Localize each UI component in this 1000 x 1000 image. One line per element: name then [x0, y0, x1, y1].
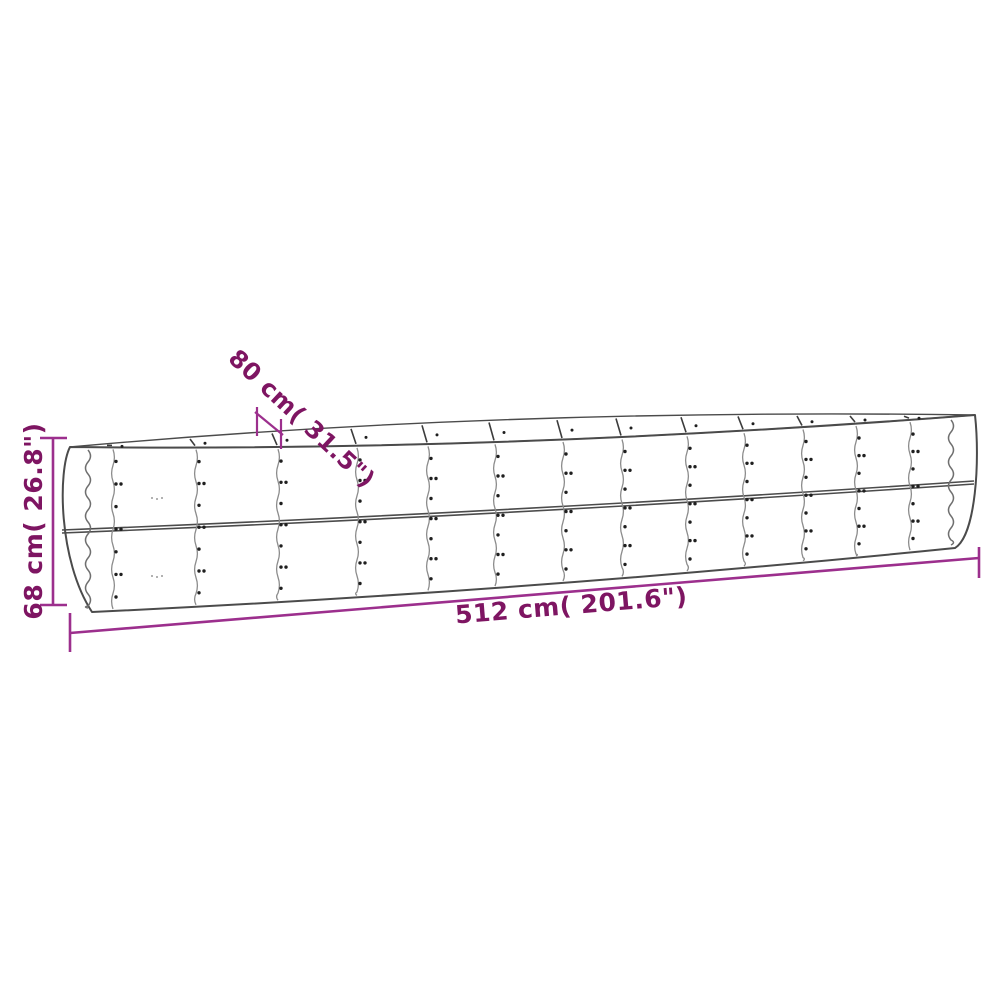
rivet-dot: [501, 514, 504, 517]
rivet-dot: [114, 460, 117, 463]
rim-rivet: [695, 424, 698, 427]
rim-notch: [738, 416, 743, 429]
rivet-dot: [197, 547, 200, 550]
rivet-dot: [688, 447, 691, 450]
rivet-dot: [496, 533, 499, 536]
rivet-dot: [857, 525, 860, 528]
rivet-dot: [496, 474, 499, 477]
rivet-dot: [197, 460, 200, 463]
rivet-dot: [688, 502, 691, 505]
rim-rivet: [811, 420, 814, 423]
rivet-dot: [745, 516, 748, 519]
rim-notch: [489, 423, 494, 441]
planter-illustration: 68 cm( 26.8") 512 cm( 201.6") 80 cm( 31.…: [0, 0, 1000, 1000]
rivet-dot: [197, 482, 200, 485]
rivet-dot: [857, 472, 860, 475]
rim-notch: [681, 417, 686, 432]
rivet-dot: [809, 458, 812, 461]
rivet-dot: [429, 497, 432, 500]
rivet-dot: [623, 487, 626, 490]
rivet-dot: [623, 525, 626, 528]
rivet-dot: [202, 569, 205, 572]
height-dimension-label: 68 cm( 26.8"): [19, 422, 48, 619]
rivet-dot: [911, 537, 914, 540]
rivet-dot: [911, 502, 914, 505]
rivet-dot: [623, 506, 626, 509]
rivet-dot: [623, 450, 626, 453]
rivet-dot: [750, 534, 753, 537]
rivet-dot: [564, 567, 567, 570]
rivet-dot: [628, 506, 631, 509]
rivet-dot: [804, 547, 807, 550]
rivet-dot: [745, 498, 748, 501]
rivet-dot: [911, 485, 914, 488]
rivet-dot: [569, 472, 572, 475]
rivet-dot: [358, 520, 361, 523]
rivet-dot: [202, 526, 205, 529]
rivet-dot: [693, 502, 696, 505]
rivet-dot: [804, 458, 807, 461]
rivet-dot: [279, 544, 282, 547]
rim-rivet: [204, 442, 207, 445]
rivet-dot: [857, 489, 860, 492]
rim-rivet: [864, 419, 867, 422]
rivet-dot: [745, 552, 748, 555]
rivet-dot: [564, 510, 567, 513]
rivet-dot: [911, 519, 914, 522]
rivet-dot: [688, 539, 691, 542]
planter-body-outline: [63, 415, 977, 612]
rivet-dot: [119, 573, 122, 576]
rim-notch: [616, 419, 621, 436]
rivet-dot: [750, 462, 753, 465]
rivet-dot: [279, 481, 282, 484]
rivet-dot: [688, 484, 691, 487]
rivet-dot: [197, 591, 200, 594]
rivet-dot: [114, 528, 117, 531]
rivet-dot: [745, 462, 748, 465]
rivet-dot: [496, 572, 499, 575]
rivet-dot: [911, 432, 914, 435]
rim-rivet: [436, 433, 439, 436]
rivet-dot: [628, 544, 631, 547]
rim-rivet: [503, 431, 506, 434]
rivet-dot: [623, 469, 626, 472]
rivet-dot: [857, 436, 860, 439]
rivet-dot: [745, 534, 748, 537]
rivet-dot: [197, 504, 200, 507]
rivet-dot: [429, 537, 432, 540]
rivet-dot: [279, 523, 282, 526]
rivet-dot: [114, 550, 117, 553]
rivet-dot: [809, 494, 812, 497]
rivet-dot: [911, 450, 914, 453]
rivet-dot: [745, 444, 748, 447]
rivet-dot: [804, 440, 807, 443]
rim-rivet: [918, 417, 921, 420]
rivet-dot: [358, 582, 361, 585]
rivet-dot: [564, 548, 567, 551]
rivet-dot: [358, 499, 361, 502]
rivet-dot: [496, 455, 499, 458]
rivet-dot: [284, 565, 287, 568]
rivet-dot: [114, 505, 117, 508]
rim-notch: [190, 439, 195, 446]
rivet-dot: [429, 517, 432, 520]
rim-rivet: [365, 436, 368, 439]
rivet-dot: [202, 482, 205, 485]
rivet-dot: [434, 477, 437, 480]
rivet-dot: [564, 529, 567, 532]
rivet-dot: [564, 472, 567, 475]
rivet-dot: [279, 565, 282, 568]
rim-notch: [422, 425, 427, 442]
rivet-dot: [363, 520, 366, 523]
rivet-dot: [804, 529, 807, 532]
rivet-dot: [862, 489, 865, 492]
rim-notch: [850, 416, 855, 422]
rivet-dot: [628, 469, 631, 472]
rivet-dot: [693, 465, 696, 468]
rivet-dot: [804, 494, 807, 497]
rivet-dot: [284, 523, 287, 526]
rivet-dot: [279, 587, 282, 590]
rivet-dot: [862, 454, 865, 457]
rivet-dot: [564, 452, 567, 455]
rivet-dot: [434, 517, 437, 520]
rim-notch: [272, 434, 277, 446]
rivet-dot: [434, 557, 437, 560]
rivet-dot: [569, 510, 572, 513]
rivet-dot: [114, 573, 117, 576]
rivet-dot: [911, 467, 914, 470]
rivet-dot: [804, 511, 807, 514]
rivet-dot: [862, 525, 865, 528]
rivet-dot: [363, 561, 366, 564]
rivet-dot: [496, 494, 499, 497]
rivet-dot: [501, 553, 504, 556]
rim-notch: [351, 429, 356, 444]
rivet-dot: [429, 577, 432, 580]
rivet-dot: [114, 482, 117, 485]
rim-rivet: [752, 422, 755, 425]
rivet-dot: [745, 480, 748, 483]
rivet-dot: [496, 514, 499, 517]
rivet-dot: [197, 526, 200, 529]
rivet-dot: [564, 491, 567, 494]
rivet-dot: [857, 507, 860, 510]
rivet-dot: [916, 450, 919, 453]
rivet-dot: [429, 477, 432, 480]
rivet-dot: [623, 544, 626, 547]
rivet-dot: [279, 502, 282, 505]
rivet-dot: [804, 476, 807, 479]
rivet-dot: [358, 561, 361, 564]
rivet-dot: [284, 481, 287, 484]
rim-notch: [557, 420, 562, 438]
rivet-dot: [496, 553, 499, 556]
rivet-dot: [358, 541, 361, 544]
rim-rivet: [286, 439, 289, 442]
diagram-canvas: 68 cm( 26.8") 512 cm( 201.6") 80 cm( 31.…: [0, 0, 1000, 1000]
rim-notch: [797, 416, 802, 426]
rim-rivet: [630, 427, 633, 430]
rivet-dot: [114, 595, 117, 598]
rim-notch: [904, 416, 909, 418]
rivet-dot: [809, 529, 812, 532]
rivet-dot: [197, 569, 200, 572]
rivet-dot: [916, 485, 919, 488]
rivet-dot: [569, 548, 572, 551]
rivet-dot: [623, 563, 626, 566]
rivet-dot: [429, 457, 432, 460]
rivet-dot: [119, 482, 122, 485]
rivet-dot: [119, 528, 122, 531]
rivet-dot: [688, 465, 691, 468]
rim-rivet: [121, 445, 124, 448]
rivet-dot: [688, 520, 691, 523]
rivet-dot: [279, 459, 282, 462]
rivet-dot: [501, 474, 504, 477]
rim-rivet: [571, 429, 574, 432]
rivet-dot: [693, 539, 696, 542]
rivet-dot: [857, 542, 860, 545]
rivet-dot: [688, 557, 691, 560]
rivet-dot: [750, 498, 753, 501]
rivet-dot: [429, 557, 432, 560]
rivet-dot: [916, 519, 919, 522]
rivet-dot: [857, 454, 860, 457]
